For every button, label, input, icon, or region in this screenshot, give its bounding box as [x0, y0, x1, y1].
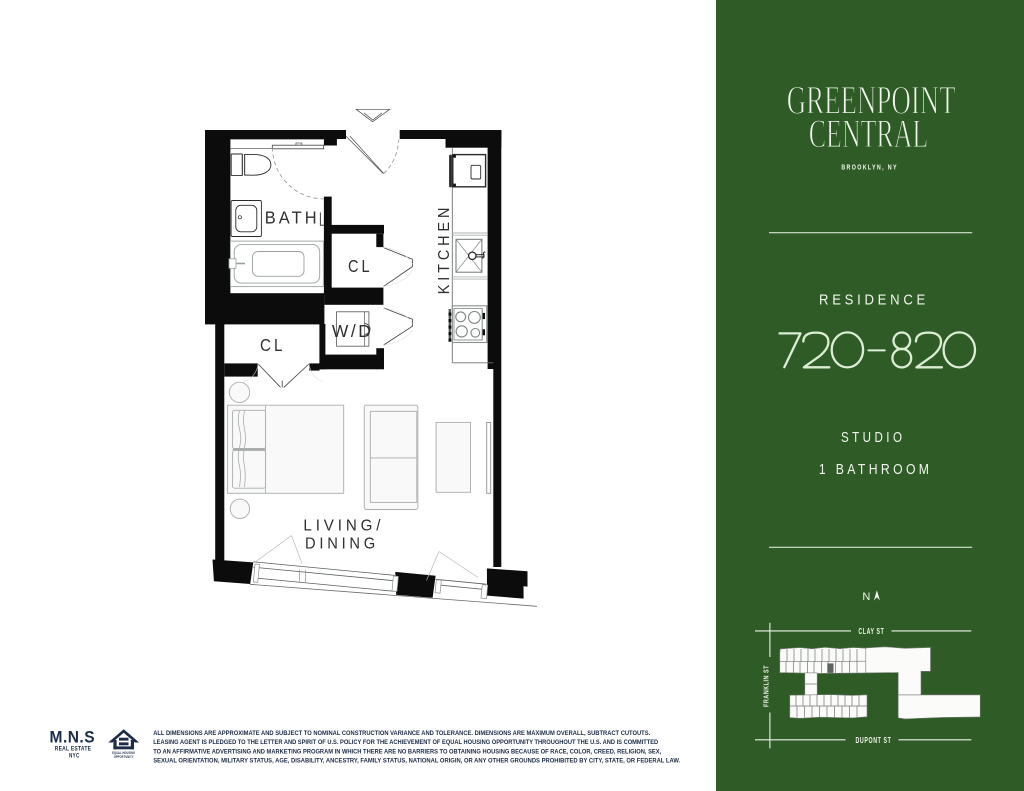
svg-text:N: N: [862, 591, 870, 603]
svg-text:LIVING/: LIVING/: [303, 518, 384, 535]
svg-text:BATH: BATH: [265, 208, 320, 228]
svg-text:CLAY ST: CLAY ST: [858, 627, 884, 636]
svg-text:RESIDENCE: RESIDENCE: [819, 293, 929, 309]
svg-text:CL: CL: [260, 335, 286, 355]
svg-text:ALL DIMENSIONS ARE APPROXIMATE: ALL DIMENSIONS ARE APPROXIMATE AND SUBJE…: [153, 730, 650, 737]
svg-text:LEASING AGENT IS PLEDGED TO TH: LEASING AGENT IS PLEDGED TO THE LETTER A…: [153, 739, 658, 746]
svg-text:OPPORTUNITY: OPPORTUNITY: [114, 755, 134, 759]
svg-text:FRANKLIN ST: FRANKLIN ST: [762, 665, 771, 707]
svg-text:DINING: DINING: [305, 536, 379, 553]
svg-text:TO AN AFFIRMATIVE ADVERTISING: TO AN AFFIRMATIVE ADVERTISING AND MARKET…: [153, 748, 661, 755]
svg-text:1 BATHROOM: 1 BATHROOM: [819, 462, 933, 478]
svg-text:NYC: NYC: [69, 752, 80, 759]
svg-text:M.N.S: M.N.S: [50, 728, 96, 746]
svg-text:BROOKLYN, NY: BROOKLYN, NY: [841, 162, 898, 171]
svg-text:W/D: W/D: [332, 321, 374, 341]
svg-text:STUDIO: STUDIO: [841, 430, 906, 446]
svg-text:SEXUAL ORIENTATION, MILITARY S: SEXUAL ORIENTATION, MILITARY STATUS, AGE…: [153, 758, 680, 765]
svg-text:CENTRAL: CENTRAL: [809, 111, 929, 156]
svg-text:KITCHEN: KITCHEN: [436, 204, 453, 295]
svg-text:CL: CL: [348, 256, 373, 276]
svg-text:REAL ESTATE: REAL ESTATE: [55, 745, 92, 752]
svg-text:DUPONT ST: DUPONT ST: [856, 736, 892, 745]
